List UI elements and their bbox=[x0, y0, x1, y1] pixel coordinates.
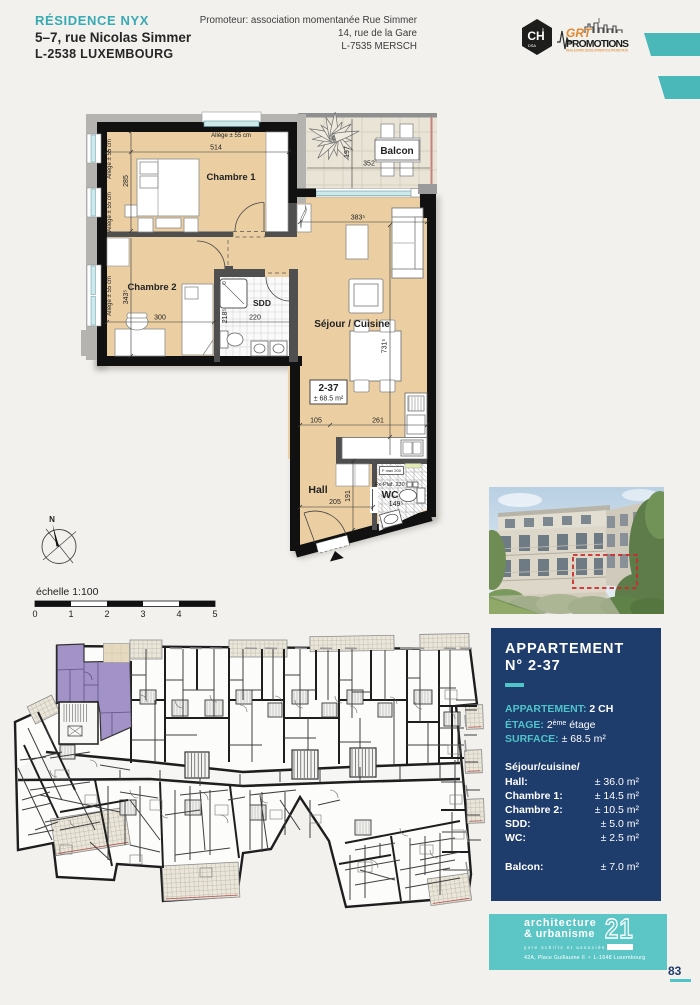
svg-text:105: 105 bbox=[310, 418, 322, 425]
svg-text:197: 197 bbox=[344, 146, 351, 158]
svg-text:Hall: Hall bbox=[308, 484, 327, 496]
svg-text:2-37: 2-37 bbox=[318, 383, 338, 394]
svg-text:SDD: SDD bbox=[253, 298, 271, 308]
svg-text:± 68.5 m²: ± 68.5 m² bbox=[314, 396, 344, 403]
svg-text:N: N bbox=[49, 515, 55, 524]
svg-text:261: 261 bbox=[372, 418, 384, 425]
svg-text:Allège ± 55 cm: Allège ± 55 cm bbox=[107, 139, 113, 179]
svg-text:Balcon: Balcon bbox=[380, 146, 413, 157]
svg-text:205: 205 bbox=[329, 499, 341, 506]
svg-text:DSA: DSA bbox=[528, 43, 537, 48]
svg-text:3: 3 bbox=[140, 609, 145, 619]
svg-text:0: 0 bbox=[32, 609, 37, 619]
svg-text:Allège ± 55 cm: Allège ± 55 cm bbox=[107, 192, 113, 232]
svg-text:Chambre 1: Chambre 1 bbox=[206, 172, 256, 183]
svg-text:REAL ESTATE DEVELOPMENTS & PRO: REAL ESTATE DEVELOPMENTS & PROMOTION bbox=[566, 49, 629, 53]
svg-text:300: 300 bbox=[154, 315, 166, 322]
svg-text:2: 2 bbox=[104, 609, 109, 619]
svg-text:731⁵: 731⁵ bbox=[382, 339, 389, 354]
svg-text:285: 285 bbox=[123, 175, 130, 187]
svg-text:4: 4 bbox=[176, 609, 181, 619]
svg-text:Chambre 2: Chambre 2 bbox=[127, 282, 176, 293]
svg-text:1: 1 bbox=[68, 609, 73, 619]
svg-text:Fx-Plaf. 230: Fx-Plaf. 230 bbox=[375, 482, 405, 488]
svg-text:352: 352 bbox=[363, 161, 375, 168]
svg-text:149⁵: 149⁵ bbox=[389, 501, 404, 508]
svg-text:514: 514 bbox=[210, 145, 222, 152]
svg-text:220: 220 bbox=[249, 315, 261, 322]
svg-text:343⁵: 343⁵ bbox=[123, 290, 130, 305]
svg-text:Allège ± 55 cm: Allège ± 55 cm bbox=[211, 133, 251, 139]
svg-text:GRT: GRT bbox=[566, 26, 593, 40]
svg-text:Séjour / Cuisine: Séjour / Cuisine bbox=[314, 319, 390, 330]
svg-text:218⁵: 218⁵ bbox=[222, 309, 229, 324]
svg-text:échelle 1:100: échelle 1:100 bbox=[36, 586, 99, 598]
svg-text:191: 191 bbox=[345, 490, 352, 502]
svg-text:F max 200: F max 200 bbox=[382, 468, 402, 473]
svg-text:383⁵: 383⁵ bbox=[351, 215, 366, 222]
svg-text:Allège ± 55 cm: Allège ± 55 cm bbox=[107, 276, 113, 316]
svg-text:WC: WC bbox=[382, 490, 399, 501]
svg-text:5: 5 bbox=[212, 609, 217, 619]
svg-text:CH: CH bbox=[527, 29, 544, 43]
